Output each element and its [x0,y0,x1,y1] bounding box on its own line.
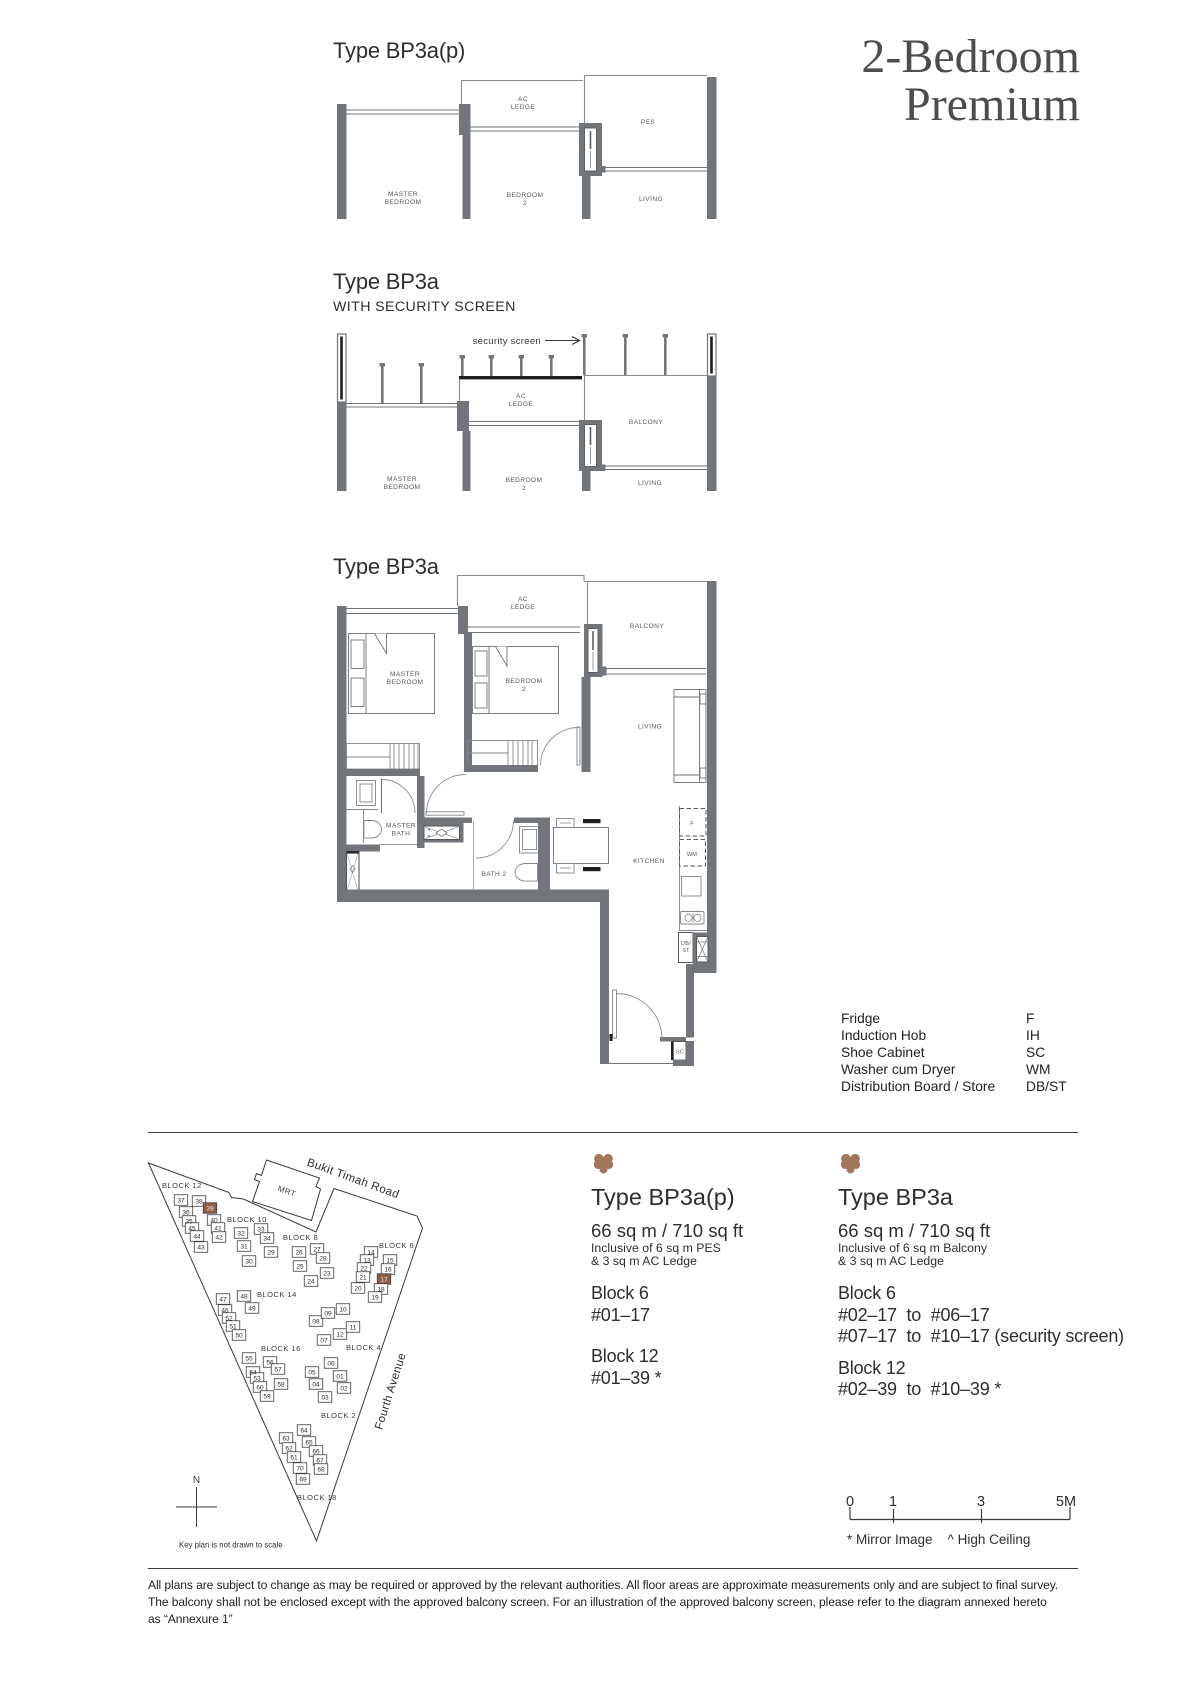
svg-text:BLOCK 6: BLOCK 6 [379,1241,414,1250]
svg-text:24: 24 [307,1278,315,1285]
svg-text:BLOCK 12: BLOCK 12 [162,1181,202,1190]
svg-text:35: 35 [185,1218,193,1225]
svg-text:33: 33 [257,1226,265,1233]
svg-text:63: 63 [282,1435,290,1442]
svg-text:43: 43 [197,1244,205,1251]
svg-text:31: 31 [240,1243,248,1250]
svg-text:56: 56 [266,1359,274,1366]
svg-text:DB/: DB/ [681,941,691,947]
svg-text:40: 40 [210,1217,218,1224]
svg-text:37: 37 [177,1197,185,1204]
svg-text:5M: 5M [1056,1494,1076,1510]
svg-text:BLOCK 10: BLOCK 10 [227,1215,267,1224]
svg-text:26: 26 [295,1249,303,1256]
svg-text:39: 39 [206,1205,214,1212]
svg-text:MASTER: MASTER [387,476,417,483]
svg-text:KITCHEN: KITCHEN [633,858,665,865]
svg-text:07: 07 [320,1337,328,1344]
svg-text:18: 18 [377,1286,385,1293]
svg-text:BLOCK 18: BLOCK 18 [297,1493,337,1502]
svg-text:LIVING: LIVING [639,196,663,203]
svg-text:10: 10 [339,1306,347,1313]
svg-text:70: 70 [296,1465,304,1472]
svg-text:BALCONY: BALCONY [630,623,665,630]
svg-text:15: 15 [386,1257,394,1264]
svg-text:58: 58 [277,1381,285,1388]
svg-text:61: 61 [290,1454,298,1461]
svg-text:BEDROOM: BEDROOM [385,199,422,206]
svg-text:60: 60 [256,1384,264,1391]
svg-text:BLOCK 8: BLOCK 8 [283,1233,318,1242]
svg-text:2: 2 [522,485,526,492]
svg-text:57: 57 [274,1366,282,1373]
svg-text:security screen: security screen [473,336,541,347]
svg-text:34: 34 [263,1235,271,1242]
svg-text:WM: WM [687,852,697,858]
svg-text:LEDGE: LEDGE [511,604,536,611]
svg-text:F: F [690,821,694,827]
svg-text:3: 3 [977,1494,985,1510]
svg-text:13: 13 [363,1257,371,1264]
svg-text:BLOCK 16: BLOCK 16 [261,1344,301,1353]
svg-text:41: 41 [214,1225,222,1232]
svg-text:BLOCK 14: BLOCK 14 [257,1290,297,1299]
svg-text:Key plan is not drawn to scale: Key plan is not drawn to scale [179,1541,283,1550]
svg-text:01: 01 [336,1373,344,1380]
svg-text:66: 66 [312,1448,320,1455]
svg-text:47: 47 [219,1296,227,1303]
svg-text:68: 68 [317,1466,325,1473]
svg-text:LIVING: LIVING [638,724,662,731]
svg-text:MASTER: MASTER [386,823,416,830]
svg-text:09: 09 [324,1310,332,1317]
svg-text:BALCONY: BALCONY [629,419,664,426]
svg-text:50: 50 [235,1332,243,1339]
svg-text:SC: SC [676,1050,684,1056]
svg-text:52: 52 [225,1315,233,1322]
svg-text:69: 69 [299,1476,307,1483]
svg-text:LEDGE: LEDGE [509,401,534,408]
svg-text:59: 59 [263,1393,271,1400]
svg-text:23: 23 [323,1270,331,1277]
svg-text:ST: ST [682,948,690,954]
svg-text:05: 05 [308,1369,316,1376]
svg-text:36: 36 [182,1209,190,1216]
svg-text:42: 42 [215,1234,223,1241]
svg-text:65: 65 [305,1439,313,1446]
svg-text:N: N [193,1475,200,1486]
svg-text:PES: PES [641,119,656,126]
svg-text:BLOCK 2: BLOCK 2 [321,1411,356,1420]
svg-text:08: 08 [312,1318,320,1325]
svg-text:45: 45 [188,1225,196,1232]
svg-text:46: 46 [221,1307,229,1314]
svg-text:28: 28 [319,1255,327,1262]
svg-text:BLOCK 4: BLOCK 4 [346,1343,381,1352]
svg-text:29: 29 [267,1249,275,1256]
svg-text:1: 1 [889,1494,897,1510]
svg-text:27: 27 [313,1246,321,1253]
svg-text:BATH: BATH [392,831,411,838]
svg-text:53: 53 [253,1375,261,1382]
svg-text:BEDROOM: BEDROOM [506,477,543,484]
svg-text:02: 02 [340,1385,348,1392]
svg-text:AC: AC [516,393,526,400]
svg-text:LIVING: LIVING [638,480,662,487]
svg-text:06: 06 [327,1360,335,1367]
svg-text:21: 21 [359,1274,367,1281]
svg-text:AC: AC [518,96,528,103]
svg-text:30: 30 [245,1258,253,1265]
svg-text:BEDROOM: BEDROOM [384,484,421,491]
svg-text:BATH 2: BATH 2 [482,871,507,878]
svg-text:67: 67 [316,1457,324,1464]
svg-text:BEDROOM: BEDROOM [506,678,543,685]
svg-text:64: 64 [300,1427,308,1434]
svg-text:49: 49 [248,1305,256,1312]
svg-text:32: 32 [237,1230,245,1237]
svg-text:25: 25 [296,1263,304,1270]
svg-text:51: 51 [229,1323,237,1330]
svg-text:19: 19 [371,1294,379,1301]
svg-text:17: 17 [380,1276,388,1283]
svg-text:MASTER: MASTER [390,671,420,678]
svg-text:12: 12 [336,1331,344,1338]
svg-text:20: 20 [354,1285,362,1292]
svg-text:04: 04 [312,1381,320,1388]
svg-text:AC: AC [518,596,528,603]
svg-text:2: 2 [523,200,527,207]
svg-text:11: 11 [350,1324,357,1331]
svg-text:14: 14 [367,1249,375,1256]
svg-text:03: 03 [321,1394,329,1401]
svg-text:48: 48 [240,1293,248,1300]
svg-text:BEDROOM: BEDROOM [507,192,544,199]
svg-text:44: 44 [193,1233,201,1240]
svg-text:16: 16 [384,1266,392,1273]
svg-text:BEDROOM: BEDROOM [387,679,424,686]
svg-text:62: 62 [285,1445,293,1452]
svg-text:MASTER: MASTER [388,191,418,198]
svg-text:Fourth Avenue: Fourth Avenue [373,1351,408,1431]
svg-text:22: 22 [360,1265,368,1272]
svg-text:38: 38 [195,1198,203,1205]
svg-text:LEDGE: LEDGE [511,104,536,111]
svg-text:2: 2 [522,686,526,693]
svg-text:0: 0 [846,1494,854,1510]
svg-text:55: 55 [245,1355,253,1362]
